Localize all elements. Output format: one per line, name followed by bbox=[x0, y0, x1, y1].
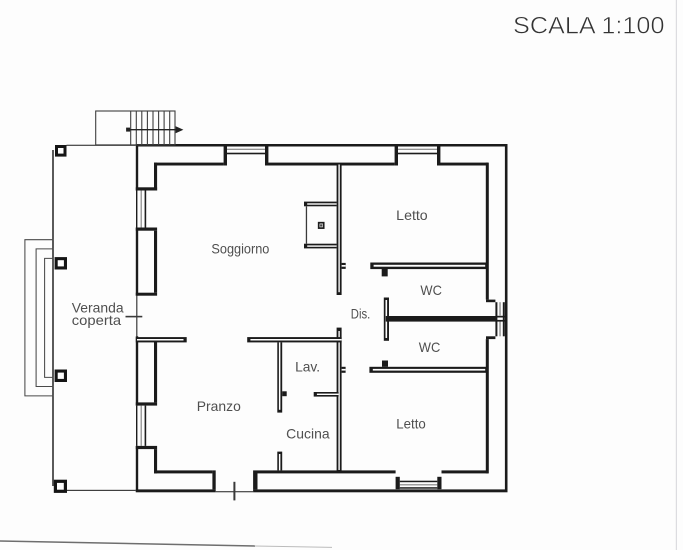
svg-text:WC: WC bbox=[419, 340, 441, 355]
svg-text:Soggiorno: Soggiorno bbox=[211, 242, 269, 257]
svg-text:Pranzo: Pranzo bbox=[197, 399, 241, 414]
svg-text:Letto: Letto bbox=[396, 208, 428, 223]
svg-text:Dis.: Dis. bbox=[351, 306, 371, 321]
svg-text:coperta: coperta bbox=[72, 313, 122, 328]
svg-text:Cucina: Cucina bbox=[286, 427, 330, 442]
svg-text:Letto: Letto bbox=[396, 416, 426, 431]
svg-text:Lav.: Lav. bbox=[295, 360, 320, 375]
svg-text:SCALA 1:100: SCALA 1:100 bbox=[513, 13, 665, 40]
svg-text:WC: WC bbox=[420, 283, 442, 298]
